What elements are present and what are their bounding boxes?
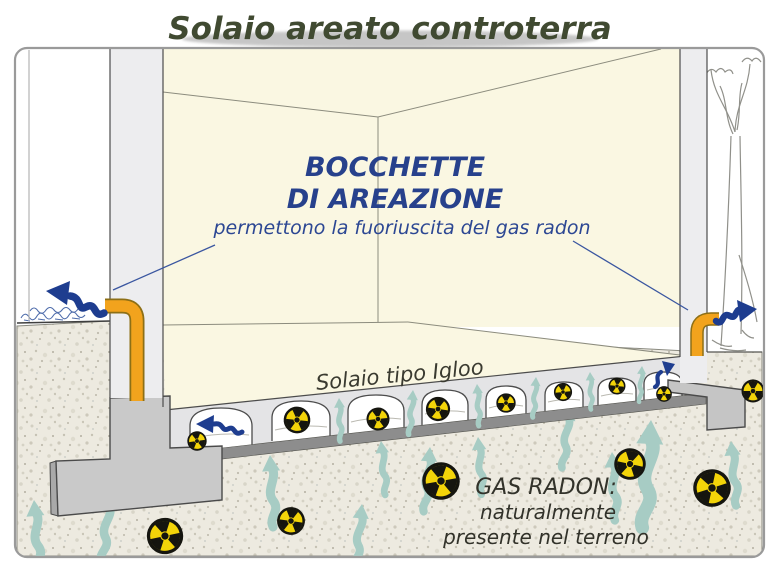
radon-line-3: presente nel terreno <box>442 525 649 549</box>
vent-callout-line2: DI AREAZIONE <box>287 184 504 215</box>
radiation-trefoil-icon <box>742 381 763 402</box>
page-title: Solaio areato controterra <box>168 11 611 47</box>
radiation-trefoil-icon <box>497 394 515 412</box>
diagram: Rn Solaio areato controterra <box>0 0 779 569</box>
radiation-trefoil-icon <box>366 407 389 430</box>
radiation-trefoil-icon <box>657 387 672 401</box>
radiation-trefoil-icon <box>284 407 311 434</box>
radon-line-2: naturalmente <box>480 500 616 524</box>
radiation-trefoil-icon <box>554 383 572 401</box>
vent-callout-line1: BOCCHETTE <box>305 152 486 183</box>
radiation-trefoil-icon <box>608 378 625 395</box>
vent-callout-description: permettono la fuoriuscita del gas radon <box>212 217 590 239</box>
figure: Rn Solaio areato controterra <box>0 0 779 569</box>
radon-heading: GAS RADON: <box>475 475 617 500</box>
